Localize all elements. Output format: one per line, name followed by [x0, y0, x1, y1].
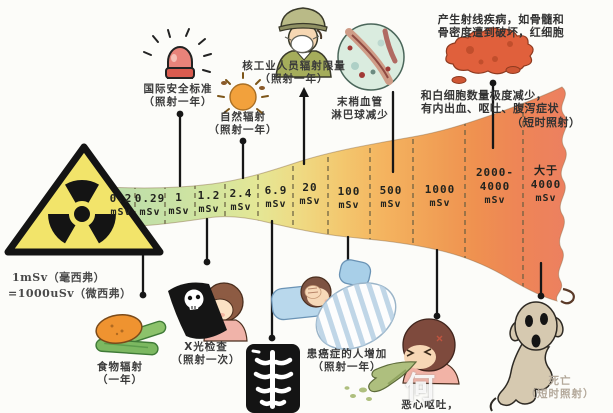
annotation-natural-radiation: 自然辐射 （照射一年） — [209, 111, 278, 136]
dose-label-1.2: 1.2mSv — [198, 189, 221, 217]
annotation-cancer: 患癌症的人增加 （照射一年） — [307, 348, 388, 373]
chest-xray-icon — [246, 344, 300, 413]
annotation-xray: X光检查 （照射一次） — [172, 341, 241, 366]
torn-edge-curl — [561, 289, 574, 303]
annotation-disease-line3: 和白细胞数量极度减少， — [421, 89, 548, 102]
dose-label-over-4000: 大于4000mSv — [531, 164, 562, 206]
dose-label-0.2: 0.2mSv — [110, 192, 133, 220]
dose-label-500: 500mSv — [380, 184, 403, 212]
food-icon — [94, 312, 167, 355]
annotation-blood-vessels: 末梢血管 淋巴球减少 — [331, 96, 389, 121]
unit-note-line1: 1mSv（毫西弗） — [12, 270, 105, 285]
blood-cells-icon — [338, 24, 404, 90]
dose-label-20: 20mSv — [299, 181, 320, 209]
dose-label-2000-4000: 2000-4000mSv — [476, 166, 514, 208]
dose-label-100: 100mSv — [338, 185, 361, 213]
annotation-death: 死亡 （短时照射） — [526, 375, 595, 400]
annotation-food: 食物辐射 （一年） — [97, 361, 143, 386]
annotation-disease-line5: （短时照射） — [512, 116, 581, 129]
annotation-nuclear-worker: 核工业人员辐射限量 （照射一年） — [242, 60, 346, 85]
watermark: 何 — [405, 363, 435, 407]
annotation-disease-line4: 有内出血、呕吐、腹泻症状 — [421, 102, 559, 115]
siren-icon — [144, 29, 211, 78]
annotation-intl-standard: 国际安全标准 （照射一年） — [144, 83, 213, 108]
annotation-disease-line2: 骨密度遭到破坏，红细胞 — [438, 26, 565, 39]
dose-label-1000: 1000mSv — [425, 183, 456, 211]
unit-note-line2: =1000uSv（微西弗） — [8, 286, 132, 301]
radiation-dose-infographic: 1mSv（毫西弗） =1000uSv（微西弗） 国际安全标准 （照射一年） 自然… — [0, 0, 613, 413]
annotation-disease-line1: 产生射线疾病，如骨髓和 — [438, 13, 565, 26]
dose-label-1: 1mSv — [168, 191, 189, 219]
dose-label-6.9: 6.9mSv — [265, 184, 288, 212]
xray-film-icon — [168, 283, 247, 341]
dose-label-0.29: 0.29mSv — [135, 192, 166, 220]
dose-label-2.4: 2.4mSv — [230, 187, 253, 215]
up-arrowhead — [299, 87, 309, 97]
